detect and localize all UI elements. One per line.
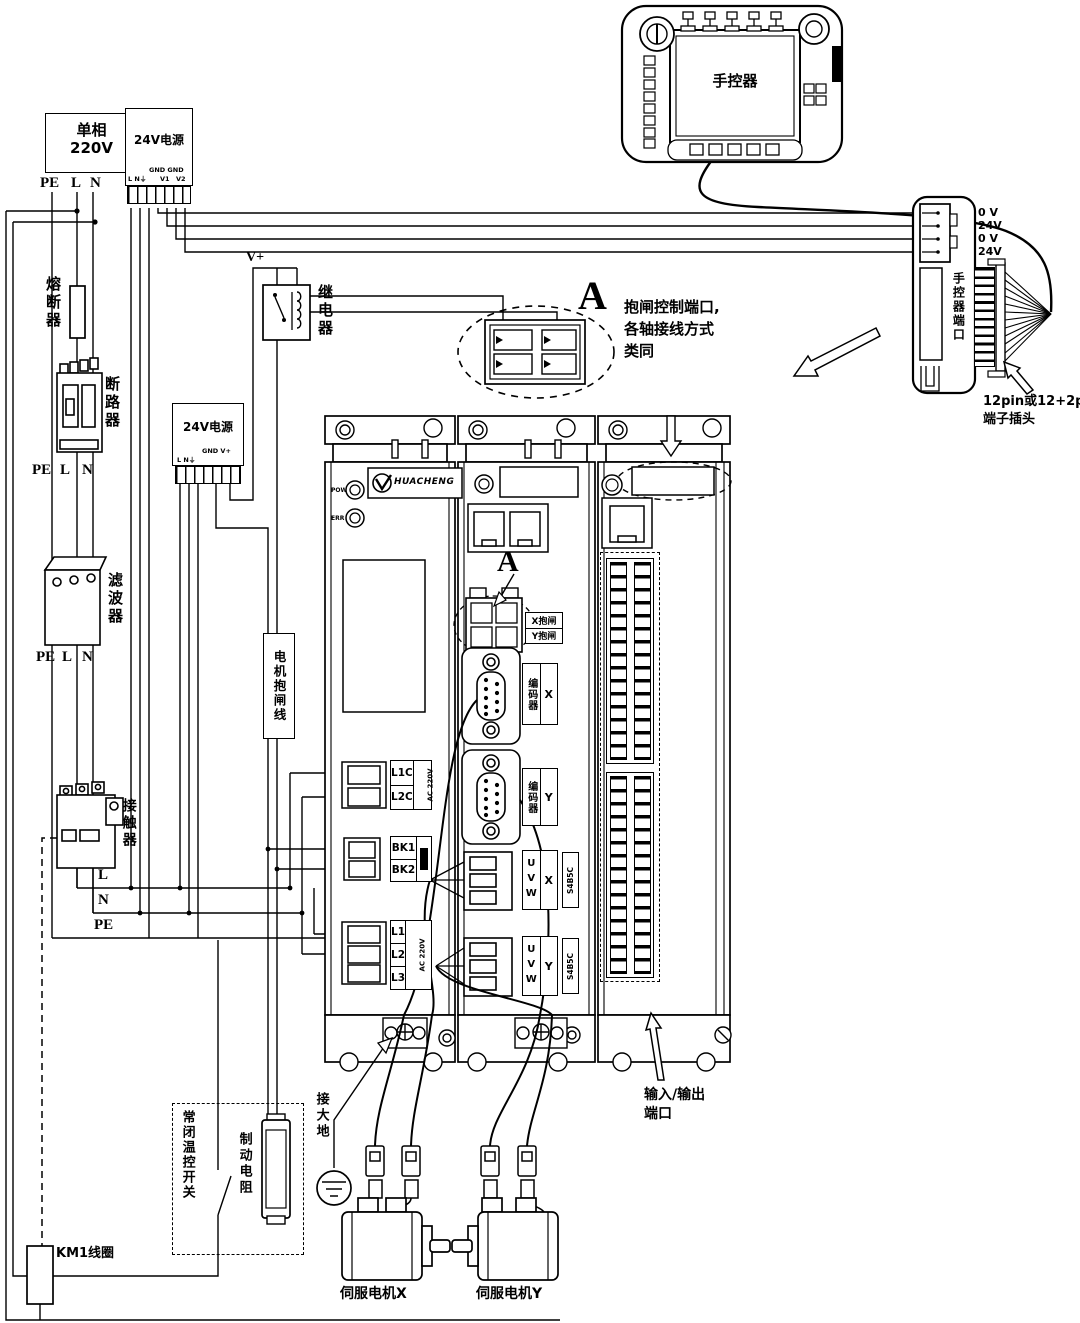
motor-brake-line-label: 电机抱闸线	[270, 650, 289, 723]
bk-label-box: BK1 BK2	[390, 836, 432, 882]
breaker-pe: PE	[32, 461, 51, 479]
detail-a-note2: 各轴接线方式	[624, 319, 720, 341]
psu2-lne: L N⏚	[177, 457, 195, 465]
l1c-label: L1C	[391, 761, 413, 786]
port-pin2: 24V	[978, 219, 1002, 232]
l1c-l2c-label-box: L1C L2C AC 220V	[390, 760, 432, 810]
ac220-label: AC 220V	[414, 761, 447, 809]
psu1-lne: L N⏚	[128, 176, 146, 184]
pendant-label: 手控器	[672, 72, 798, 90]
filter-l: L	[62, 648, 72, 666]
err-label: ERR	[331, 515, 344, 522]
detail-a-letter: A	[578, 272, 607, 320]
breaker-n: N	[82, 461, 93, 479]
filter-n: N	[82, 648, 93, 666]
bk2-label: BK2	[391, 860, 416, 882]
encoder-label: 编码器	[523, 664, 541, 724]
detail-a-note: 抱闸控制端口, 各轴接线方式 类同	[624, 297, 720, 362]
km1-coil-symbol	[27, 1246, 53, 1304]
encoder-x-label-box: 编码器 X	[522, 663, 558, 725]
encoder-label: 编码器	[523, 769, 541, 825]
km1-label: KM1线圈	[56, 1246, 114, 1262]
breaker-label: 断路器	[103, 376, 121, 430]
side-slot-icon	[832, 46, 841, 82]
psu2-gnd: GND V+	[202, 448, 231, 456]
module-a-letter: A	[497, 544, 519, 580]
ground-label: 接大地	[313, 1092, 329, 1140]
uvw-label: UVW	[523, 851, 541, 909]
x-brake-label: X抱闸	[526, 613, 562, 629]
detail-a-note3: 类同	[624, 341, 720, 363]
servo-motor-x-label: 伺服电机X	[340, 1286, 407, 1303]
axis-x-label: X	[541, 664, 558, 724]
brand-label: HUACHENG	[394, 477, 454, 488]
s4b5c-tag-y: S4B5C	[562, 938, 579, 994]
ac220-label: AC 220V	[406, 921, 439, 989]
filter-label: 滤波器	[106, 572, 124, 626]
contactor-symbol	[57, 782, 123, 868]
brake-label-box: X抱闸 Y抱闸	[525, 612, 563, 644]
plug-note-arrow-icon	[1004, 362, 1033, 394]
mains-pe: PE	[40, 174, 59, 192]
wiring-diagram: 单相 220V PE L N 24V电源 GND GND L N⏚ V1 V2 …	[0, 0, 1080, 1323]
motor-plugs	[366, 1146, 536, 1198]
axis-x-label: X	[541, 851, 558, 909]
s4b5c-tag-x: S4B5C	[562, 852, 579, 908]
psu2-terminal-strip	[175, 466, 241, 484]
bottom-button-row	[668, 140, 802, 160]
psu1-terminal-strip	[127, 186, 191, 204]
relay-label: 继电器	[316, 284, 334, 338]
pendant-port-label: 手控器端口	[951, 272, 965, 342]
vplus-label: V+	[246, 250, 264, 267]
port-slot	[920, 268, 942, 360]
mains-n: N	[90, 174, 101, 192]
port-pin3: 0 V	[978, 232, 998, 245]
psu1-v1: V1	[160, 176, 170, 184]
l1-label: L1	[391, 921, 405, 944]
thermal-switch-label: 常闭温控开关	[179, 1110, 195, 1200]
plug-12pin-teeth	[974, 267, 995, 367]
plug-body	[996, 263, 1005, 371]
port-pin1: 0 V	[978, 206, 998, 219]
uvw-y-label-box: UVW Y	[522, 936, 558, 996]
relay-symbol	[263, 285, 310, 340]
line-filter-symbol	[45, 557, 106, 645]
mains-l: L	[71, 174, 81, 192]
io-port-label: 输入/输出 端口	[644, 1086, 705, 1124]
ethernet-port-icon	[602, 498, 652, 548]
resistor-glyph-icon	[417, 837, 431, 881]
contactor-label: 接触器	[120, 798, 137, 849]
pow-label: POW	[331, 487, 347, 494]
breaker-l: L	[60, 461, 70, 479]
servo-motor-y-label: 伺服电机Y	[476, 1286, 542, 1303]
io-terminal-block-2	[606, 772, 654, 978]
detail-a-note1: 抱闸控制端口,	[624, 297, 720, 319]
psu1-v2: V2	[176, 176, 186, 184]
big-arrow-icon	[794, 328, 880, 376]
uvw-x-label-box: UVW X	[522, 850, 558, 910]
braking-resistor-label: 制动电阻	[236, 1132, 252, 1196]
bk1-label: BK1	[391, 837, 416, 860]
psu1-gnd: GND GND	[149, 167, 184, 175]
circuit-breaker-symbol	[57, 358, 102, 452]
uvw-label: UVW	[523, 937, 541, 995]
fuse-symbol	[70, 286, 85, 338]
bus-n: N	[98, 891, 109, 909]
plug-note2: 端子插头	[983, 412, 1035, 428]
y-brake-label: Y抱闸	[526, 629, 562, 644]
encoder-x-db9-icon	[462, 648, 520, 744]
axis-y-label: Y	[541, 937, 558, 995]
servo-motor-x	[342, 1198, 450, 1280]
encoder-y-db9-icon	[462, 750, 520, 844]
l1l2l3-label-box: L1 L2 L3 AC 220V	[390, 920, 432, 990]
plug-note1: 12pin或12+2pin	[983, 394, 1080, 410]
bus-l: L	[98, 866, 108, 884]
psu1-title: 24V电源	[126, 109, 192, 147]
contactor-coil-dashed-wire	[42, 838, 57, 1246]
l3-label: L3	[391, 967, 405, 989]
pin-fanout-wires	[1005, 272, 1051, 361]
axis-y-label: Y	[541, 769, 558, 825]
filter-pe: PE	[36, 648, 55, 666]
port-pin4: 24V	[978, 245, 1002, 258]
bus-pe: PE	[94, 916, 113, 934]
fuse-label: 熔断器	[44, 276, 62, 330]
uvw-x-connector-icon	[464, 852, 512, 910]
mains-line1: 单相	[46, 121, 137, 139]
psu2-title: 24V电源	[173, 404, 243, 434]
l2c-label: L2C	[391, 786, 413, 810]
io-terminal-block-1	[606, 558, 654, 764]
motor-brake-line-box: 电机抱闸线	[263, 633, 295, 739]
encoder-y-label-box: 编码器 Y	[522, 768, 558, 826]
l2-label: L2	[391, 944, 405, 967]
mains-line2: 220V	[46, 139, 137, 157]
